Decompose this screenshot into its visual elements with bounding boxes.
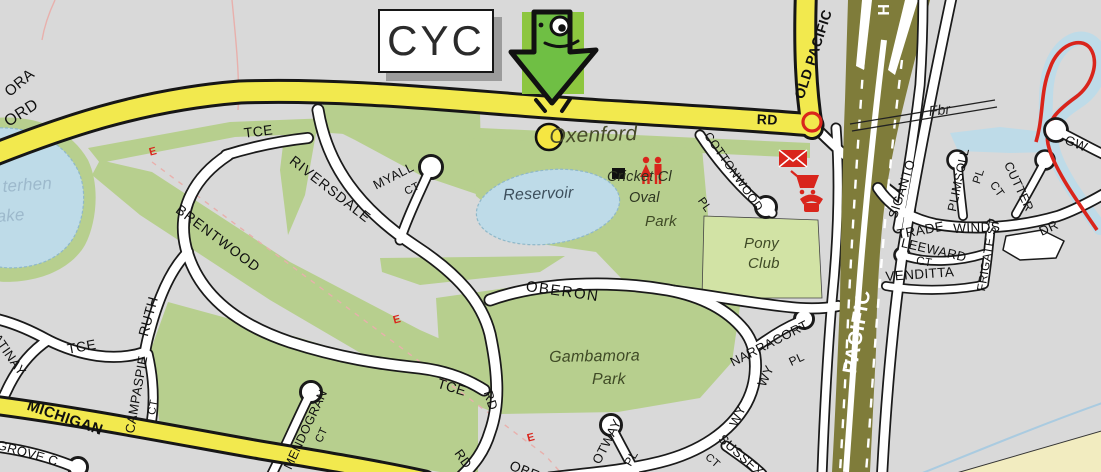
road-label-tce-upper: TCE — [243, 122, 274, 139]
place-label-gambamora: Gambamora — [549, 348, 640, 366]
parcel-outline — [1003, 230, 1064, 260]
place-label-club: Club — [748, 256, 780, 271]
cyc-callout-label: CYC — [387, 17, 485, 65]
place-label-oval: Oval — [629, 191, 660, 206]
footbridge-label: Fbr — [928, 102, 951, 118]
map-canvas: CYC ORA ORD OLD PACIFIC RD H PACIFIC MIC… — [0, 0, 1101, 472]
place-label-park: Park — [645, 214, 677, 229]
road-label-rd: RD — [757, 112, 779, 127]
place-label-gambamora-park: Park — [592, 372, 626, 388]
envelope-icon — [779, 150, 807, 167]
phone-icon — [800, 195, 823, 213]
lake-label-partial-1: terhen — [2, 175, 52, 195]
place-label-pony: Pony — [744, 236, 779, 251]
locality-label-oxenford: Oxenford — [549, 123, 638, 147]
place-label-reservoir: Reservoir — [503, 186, 574, 204]
lake-label-partial-2: ake — [0, 206, 25, 225]
place-label-cricket: Cricket Cl — [607, 170, 672, 185]
cyc-callout-box: CYC — [378, 9, 494, 73]
road-label-hwy-partial: H — [874, 4, 890, 16]
boundary-line-corner — [42, 0, 55, 40]
street-map — [0, 0, 1101, 472]
cart-icon — [791, 171, 819, 194]
